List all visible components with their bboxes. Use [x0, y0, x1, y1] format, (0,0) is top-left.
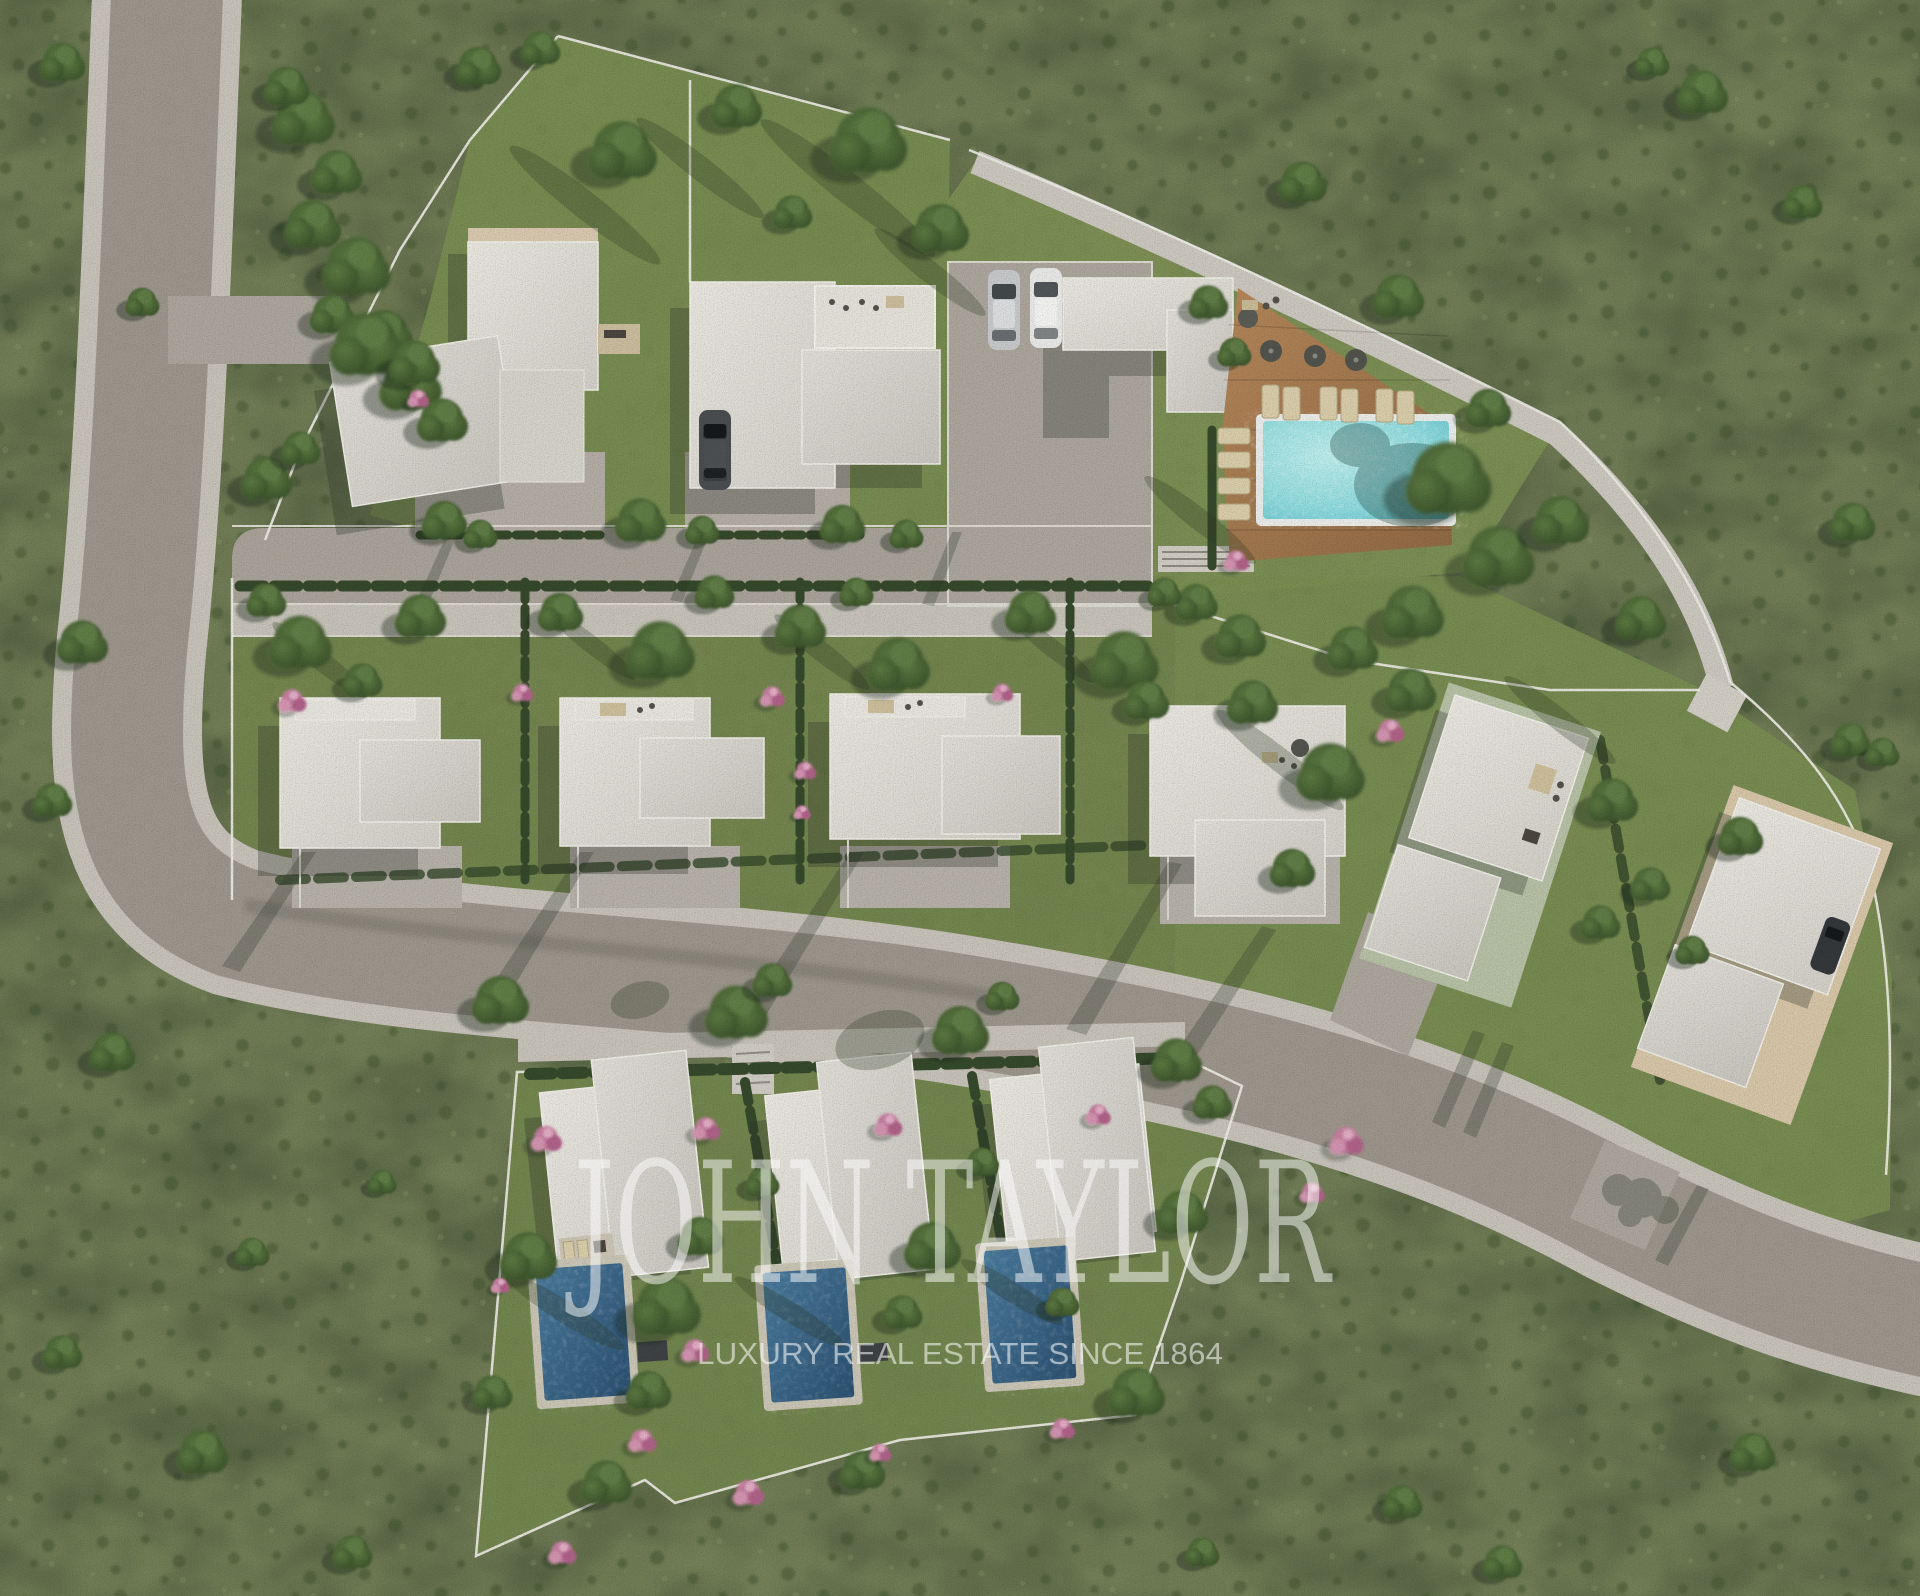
- masterplan-svg: JOHN TAYLOR LUXURY REAL ESTATE SINCE 186…: [0, 0, 1920, 1596]
- tagline-text: LUXURY REAL ESTATE SINCE 1864: [697, 1336, 1223, 1371]
- brand-text: JOHN TAYLOR: [565, 1126, 1333, 1322]
- masterplan-render: JOHN TAYLOR LUXURY REAL ESTATE SINCE 186…: [0, 0, 1920, 1596]
